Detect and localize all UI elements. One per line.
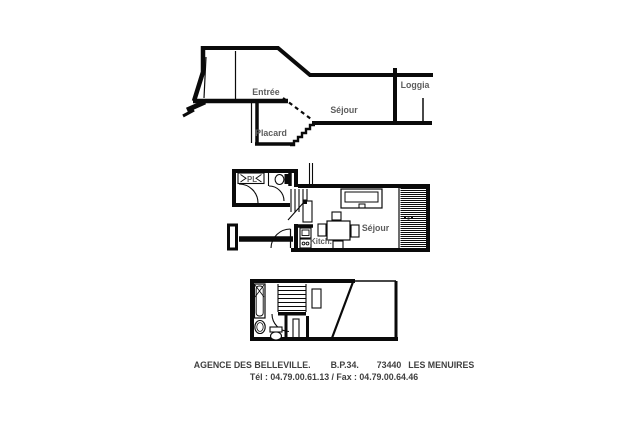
- hob-burner-1: [302, 242, 305, 245]
- closet-rail-left: [241, 175, 247, 183]
- placard-label: Placard: [255, 128, 287, 138]
- main-level-plan: PL Séjour Kitch.: [229, 163, 431, 252]
- chair-right: [351, 225, 359, 237]
- agency-phone-line: Tél : 04.79.00.61.13 / Fax : 04.79.00.64…: [28, 372, 640, 382]
- upper-toilet-tank: [270, 327, 282, 332]
- bathroom-door-leaf: [293, 319, 299, 340]
- corridor-wall-cap: [229, 225, 237, 249]
- hob-burner-2: [306, 242, 309, 245]
- kitchen-label: Kitch.: [310, 237, 332, 246]
- loggia-mark-2: [408, 218, 410, 220]
- upper-stairs-wall-band: [278, 312, 306, 316]
- loggia-label: Loggia: [401, 80, 430, 90]
- toilet-tank: [285, 174, 290, 184]
- sejour-plan-label: Séjour: [362, 223, 390, 233]
- chair-top: [332, 212, 341, 220]
- loggia-mark-1: [404, 217, 406, 219]
- section-view: Entrée Placard Séjour Loggia: [183, 46, 433, 145]
- loggia-mark-3: [411, 217, 413, 219]
- closet-door-arc: [239, 184, 258, 203]
- chair-bottom: [333, 241, 343, 249]
- section-stairs-steps: [290, 125, 315, 145]
- upper-level-plan: [250, 279, 398, 341]
- floor-plan-sheet: Entrée Placard Séjour Loggia: [0, 0, 640, 427]
- entree-label: Entrée: [252, 87, 279, 97]
- agency-name: AGENCE DES BELLEVILLE.: [194, 360, 311, 370]
- wc-door-arc: [269, 186, 284, 201]
- agency-city: LES MENUIRES: [408, 360, 474, 370]
- toilet-bowl: [275, 175, 284, 185]
- kitchen-sink-basin: [302, 230, 309, 236]
- upper-toilet-bowl: [271, 332, 282, 340]
- footer: AGENCE DES BELLEVILLE. B.P.34. 73440 LES…: [28, 360, 640, 382]
- agency-address-line: AGENCE DES BELLEVILLE. B.P.34. 73440 LES…: [28, 360, 640, 370]
- sejour-section-label: Séjour: [330, 105, 358, 115]
- stairs-landing: [303, 201, 312, 222]
- closet-label: PL: [247, 175, 257, 184]
- section-left-wall: [194, 46, 203, 101]
- sloped-ceiling-line: [332, 282, 353, 338]
- upper-stairs-treads: [278, 287, 306, 311]
- agency-po-box: B.P.34.: [331, 360, 359, 370]
- chair-left: [318, 224, 326, 236]
- landing-door: [312, 289, 321, 308]
- agency-postal-code: 73440: [377, 360, 401, 370]
- stairs-cut-marker: [303, 200, 308, 205]
